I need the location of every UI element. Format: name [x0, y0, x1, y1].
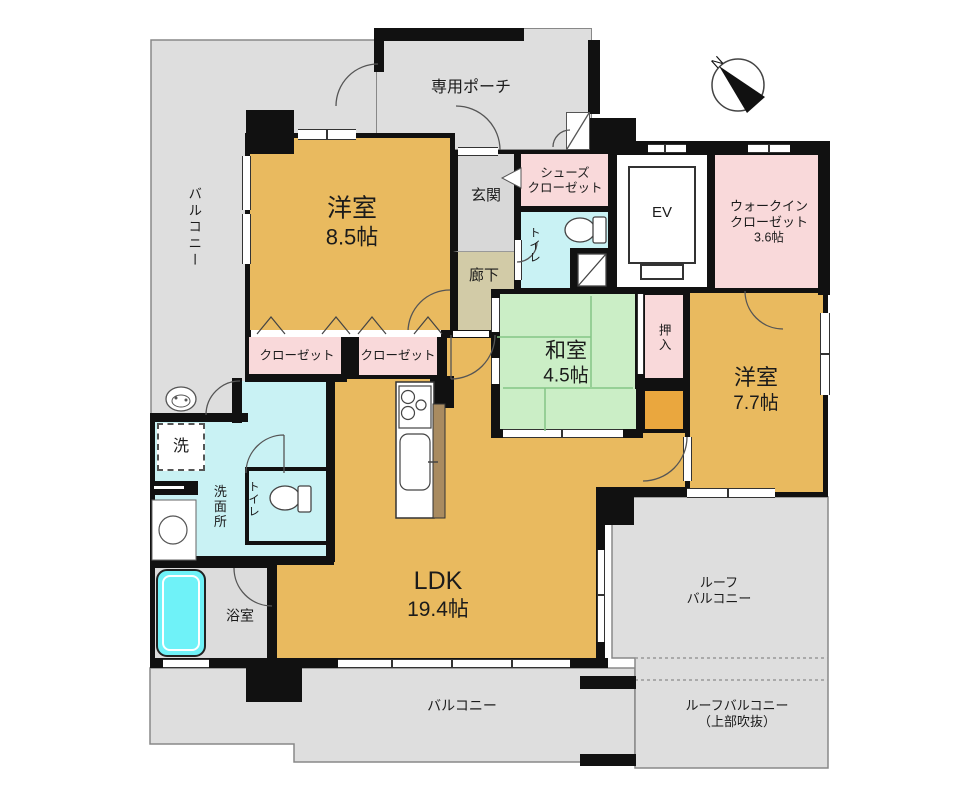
label-closet-1: クローゼット: [259, 348, 334, 363]
label-walk-in-closet: ウォークイン クローゼット 3.6帖: [730, 199, 808, 246]
pipe-shaft: [578, 254, 606, 286]
ldk-size: 19.4帖: [407, 596, 469, 622]
label-shoes-closet: シューズ クローゼット: [527, 166, 602, 197]
label-corridor: 廊下: [469, 267, 499, 285]
kitchen-counter: [396, 382, 445, 518]
japanese-room-name: 和室: [545, 339, 587, 365]
ldk-door-arc: [451, 335, 495, 379]
label-washroom: 洗面所: [211, 485, 227, 530]
bathtub-icon: [157, 570, 205, 656]
label-elevator: EV: [652, 204, 672, 222]
western1-door-arc: [408, 290, 450, 332]
entrance-door-arc: [456, 106, 500, 150]
label-washer: 洗: [173, 437, 189, 457]
floor-plan: N バルコニー 専用ポーチ 洋室 8.5帖 玄関 シューズ クローゼット トイレ…: [0, 0, 980, 796]
western-2-name: 洋室: [734, 365, 778, 392]
label-toilet-1: トイレ: [527, 226, 541, 264]
label-ldk: LDK 19.4帖: [407, 566, 469, 622]
compass-icon: N: [708, 53, 765, 113]
label-roof-balcony: ルーフ バルコニー: [687, 575, 752, 607]
roof-balcony-void-line2: （上部吹抜）: [698, 714, 776, 730]
label-closet-2: クローゼット: [360, 348, 435, 363]
roof-balcony-void-line1: ルーフバルコニー: [686, 698, 789, 714]
western2-door-arc: [745, 291, 783, 329]
bathroom-door-arc: [234, 568, 272, 606]
label-bathroom: 浴室: [226, 607, 254, 624]
wic-size: 3.6帖: [754, 230, 784, 245]
slop-sink-icon: [166, 387, 196, 411]
plan-symbols: N: [0, 0, 980, 796]
label-western-2: 洋室 7.7帖: [733, 365, 778, 415]
passage-door-arc: [643, 437, 687, 481]
washroom-door-arc: [246, 435, 284, 473]
shoes-closet-line2: クローゼット: [527, 181, 602, 196]
balcony-door-arc: [206, 381, 240, 415]
vanity-icon: [152, 500, 196, 560]
label-private-porch: 専用ポーチ: [431, 78, 511, 98]
label-japanese-room: 和室 4.5帖: [543, 339, 588, 388]
label-toilet-2: トイレ: [246, 480, 260, 518]
label-balcony-bottom: バルコニー: [427, 697, 497, 714]
wic-line1: ウォークイン: [730, 199, 808, 215]
porch-door-arc: [336, 64, 378, 106]
western-1-name: 洋室: [327, 193, 377, 224]
porch-gate-leaf: [567, 113, 589, 149]
roof-balcony-line1: ルーフ: [700, 575, 738, 591]
western-1-size: 8.5帖: [326, 224, 379, 251]
wic-line2: クローゼット: [730, 214, 808, 230]
western-2-size: 7.7帖: [733, 392, 778, 415]
roof-balcony-line2: バルコニー: [687, 591, 752, 607]
shoes-closet-line1: シューズ: [540, 166, 589, 181]
label-western-1: 洋室 8.5帖: [326, 193, 379, 250]
sink-icon: [400, 434, 430, 490]
toilet-icon-2: [270, 486, 311, 512]
label-balcony-left: バルコニー: [185, 187, 201, 270]
label-genkan: 玄関: [471, 187, 501, 205]
ldk-name: LDK: [414, 566, 463, 597]
step-marker: [502, 168, 521, 188]
label-roof-balcony-void: ルーフバルコニー （上部吹抜）: [686, 698, 789, 730]
toilet-icon-1: [565, 217, 606, 243]
folding-door-zigzag: [251, 317, 442, 337]
label-oshiire: 押入: [655, 324, 670, 353]
japanese-room-size: 4.5帖: [543, 364, 588, 387]
porch-gate-arc: [553, 130, 570, 147]
